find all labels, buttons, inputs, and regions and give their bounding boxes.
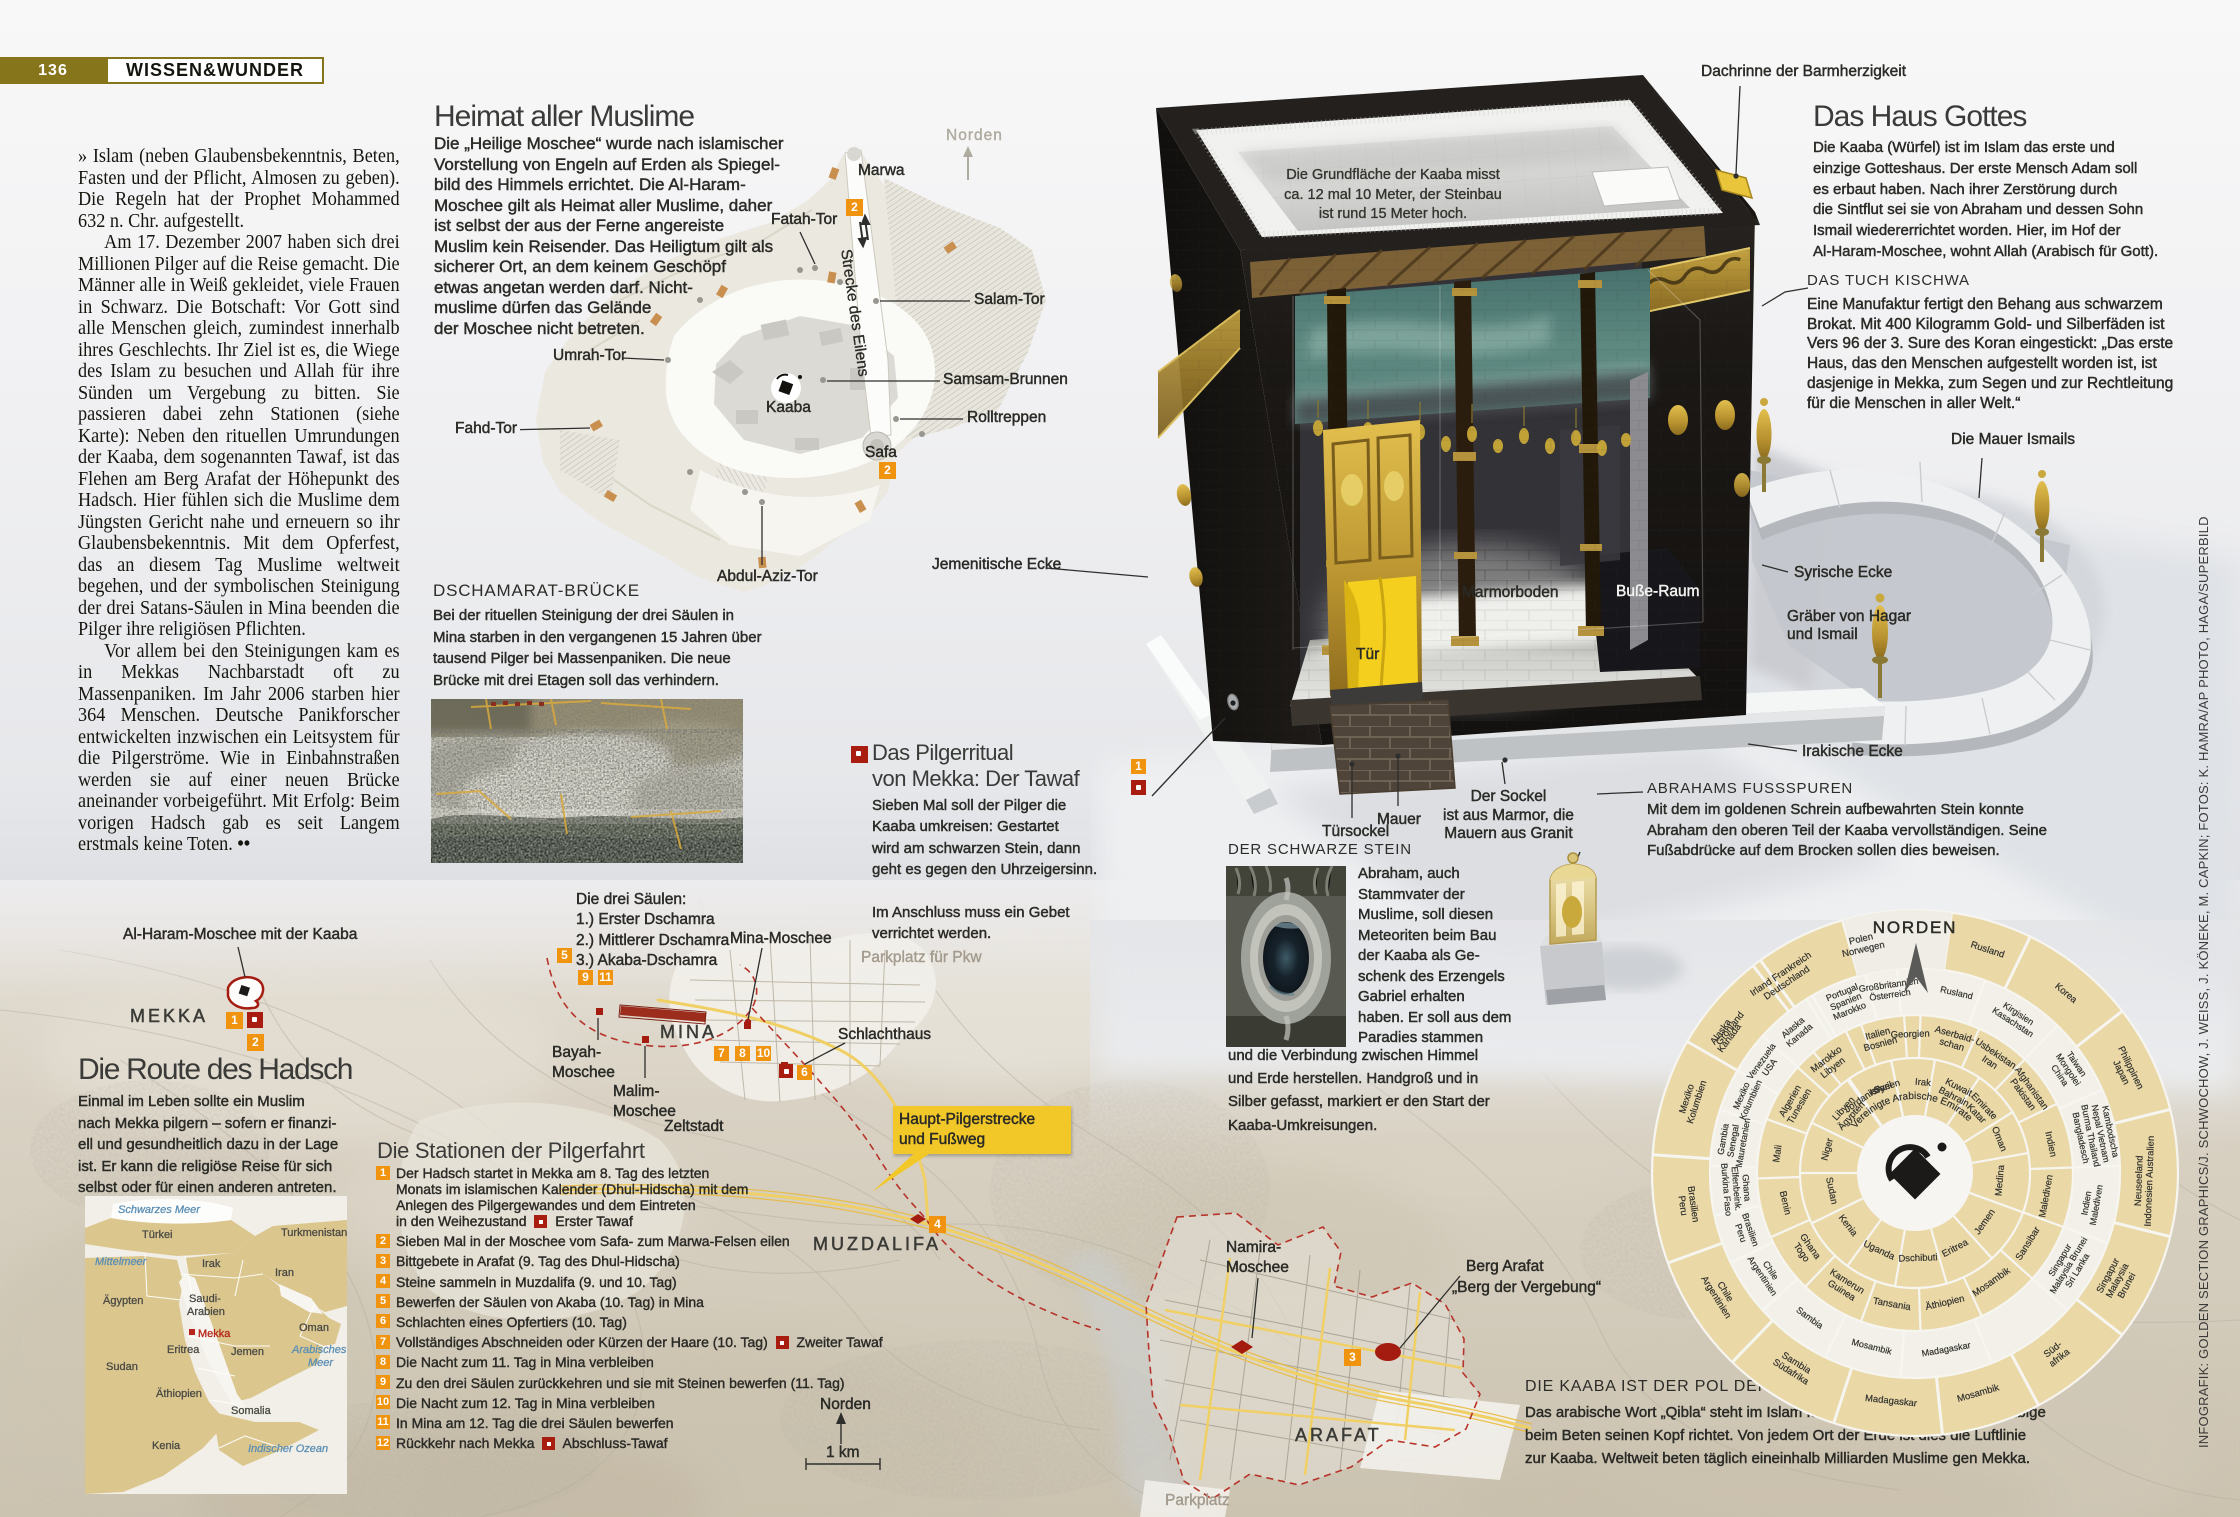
svg-text:Norden: Norden <box>946 127 1003 144</box>
svg-text:Arabien: Arabien <box>187 1306 225 1318</box>
svg-text:Sudan: Sudan <box>106 1361 138 1373</box>
svg-text:Türkei: Türkei <box>142 1229 173 1241</box>
svg-text:Saudi-: Saudi- <box>189 1293 221 1305</box>
svg-text:Meer: Meer <box>308 1357 334 1369</box>
svg-text:Schwarzes Meer: Schwarzes Meer <box>118 1204 201 1216</box>
svg-text:Jemen: Jemen <box>231 1346 264 1358</box>
svg-text:Mittelmeer: Mittelmeer <box>95 1256 148 1268</box>
svg-text:Dschibuti: Dschibuti <box>1898 1252 1937 1264</box>
svg-text:Arabisches: Arabisches <box>291 1344 347 1356</box>
svg-text:NORDEN: NORDEN <box>1873 918 1957 937</box>
svg-text:Irak: Irak <box>202 1258 221 1270</box>
svg-text:Irak: Irak <box>1915 1077 1932 1089</box>
svg-text:Eritrea: Eritrea <box>167 1344 200 1356</box>
svg-text:Oman: Oman <box>299 1322 329 1334</box>
svg-text:Iran: Iran <box>275 1267 294 1279</box>
svg-text:Turkmenistan: Turkmenistan <box>281 1227 347 1239</box>
svg-text:Somalia: Somalia <box>231 1405 272 1417</box>
svg-text:Ägypten: Ägypten <box>103 1295 143 1307</box>
svg-text:Mekka: Mekka <box>198 1328 231 1340</box>
svg-text:Äthiopien: Äthiopien <box>156 1388 202 1400</box>
svg-text:Indischer Ozean: Indischer Ozean <box>248 1443 328 1455</box>
svg-text:Kenia: Kenia <box>152 1440 181 1452</box>
